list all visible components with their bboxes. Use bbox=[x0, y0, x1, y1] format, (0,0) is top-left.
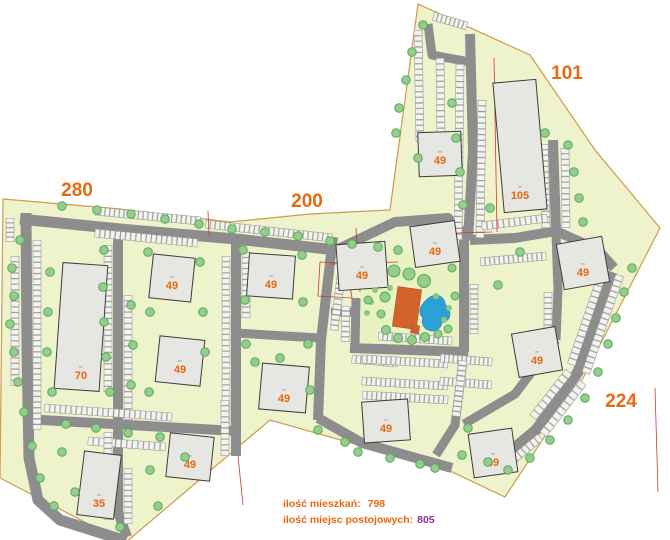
parking-stall bbox=[440, 377, 444, 385]
parking-stall bbox=[334, 294, 343, 300]
parking-stall bbox=[415, 109, 423, 114]
parking-stall bbox=[205, 220, 210, 228]
parking-stall bbox=[127, 440, 132, 448]
parking-stall bbox=[456, 76, 464, 81]
parking-stall bbox=[562, 205, 570, 210]
tree bbox=[541, 129, 550, 138]
parking-stall bbox=[222, 284, 230, 289]
parking-stall bbox=[110, 231, 115, 239]
parking-stall bbox=[542, 252, 547, 260]
apartments-value: 798 bbox=[368, 498, 386, 510]
parking-stall bbox=[410, 380, 415, 388]
parking-stall bbox=[221, 417, 229, 422]
tree bbox=[127, 301, 136, 310]
parking-stall bbox=[470, 299, 478, 303]
parking-stall bbox=[11, 341, 19, 346]
parking-stall bbox=[11, 330, 19, 335]
tree bbox=[276, 354, 285, 363]
parking-stall bbox=[405, 358, 410, 366]
tree bbox=[199, 308, 208, 317]
building-unit-count: 49 bbox=[278, 393, 290, 405]
parking-stall bbox=[476, 233, 484, 238]
parking-stall bbox=[474, 380, 478, 388]
tree bbox=[58, 448, 67, 457]
parking-stall bbox=[562, 223, 570, 228]
tree bbox=[48, 388, 57, 397]
tree bbox=[100, 318, 109, 327]
parking-stall bbox=[470, 319, 478, 323]
parking-stall bbox=[429, 395, 434, 403]
parking-stall bbox=[509, 255, 514, 263]
road bbox=[355, 298, 356, 346]
parking-stall bbox=[104, 257, 112, 262]
parking-stall bbox=[105, 230, 110, 238]
tree bbox=[434, 330, 442, 338]
parking-stall bbox=[221, 406, 229, 411]
parking-stall bbox=[405, 380, 410, 388]
tree bbox=[382, 326, 391, 335]
parking-stall bbox=[146, 234, 151, 242]
tree bbox=[448, 264, 456, 272]
parking-stall bbox=[98, 408, 103, 416]
parking-stall bbox=[303, 231, 308, 239]
parking-stall bbox=[477, 175, 485, 180]
parking-stall bbox=[562, 200, 570, 205]
parking-stall bbox=[362, 377, 367, 385]
tree bbox=[459, 201, 468, 210]
tree bbox=[408, 48, 417, 57]
parking-stall bbox=[458, 360, 466, 365]
parking-stall bbox=[455, 386, 463, 391]
parking-stall bbox=[116, 439, 121, 447]
tree bbox=[575, 194, 584, 203]
tree bbox=[10, 292, 19, 301]
parking-stall bbox=[6, 228, 14, 232]
parking-stall bbox=[215, 221, 220, 229]
parking-stall bbox=[414, 30, 422, 35]
parking-stall bbox=[448, 378, 452, 386]
parking-stall bbox=[330, 325, 339, 331]
parking-stall bbox=[367, 391, 372, 399]
tree bbox=[156, 433, 165, 442]
tree bbox=[458, 451, 467, 460]
parking-stall bbox=[33, 341, 41, 346]
parking-stall bbox=[424, 381, 429, 389]
parking-stall bbox=[11, 358, 19, 363]
tree bbox=[129, 341, 138, 350]
tree bbox=[146, 308, 155, 317]
district-label-280: 280 bbox=[61, 180, 93, 201]
community-building-annex bbox=[411, 325, 420, 334]
parking-stall bbox=[167, 236, 172, 244]
parking-stall bbox=[33, 274, 41, 279]
parking-stall bbox=[454, 193, 462, 198]
parking-stall bbox=[410, 394, 415, 402]
tree bbox=[408, 336, 417, 345]
parking-stall bbox=[436, 93, 444, 98]
parking-stall bbox=[562, 217, 570, 222]
parking-stall bbox=[124, 392, 132, 397]
tree bbox=[14, 378, 23, 387]
parking-stall bbox=[498, 219, 504, 228]
parking-stall bbox=[221, 451, 229, 456]
parking-stall bbox=[478, 106, 486, 111]
parking-stall bbox=[124, 491, 132, 496]
parking-stall bbox=[33, 257, 41, 262]
parking-stall bbox=[415, 103, 423, 108]
parking-stall bbox=[372, 356, 377, 364]
parking-stall bbox=[484, 357, 488, 365]
parking-stall bbox=[33, 408, 41, 413]
parking-stall bbox=[334, 299, 343, 305]
building-unit-count: 49 bbox=[265, 279, 277, 291]
tree bbox=[451, 292, 459, 300]
parking-stall bbox=[66, 406, 71, 414]
parking-stall bbox=[221, 400, 229, 405]
parking-stall bbox=[341, 322, 349, 327]
parking-stall bbox=[124, 468, 132, 473]
building: m²70 bbox=[54, 263, 108, 392]
parking-stall bbox=[11, 364, 19, 369]
parking-stall bbox=[33, 302, 41, 307]
parking-stall bbox=[104, 381, 112, 386]
parking-stall bbox=[525, 216, 531, 225]
parking-stall bbox=[356, 355, 361, 363]
parking-stall bbox=[33, 313, 41, 318]
parking-stall bbox=[33, 397, 41, 402]
parking-stall bbox=[478, 118, 486, 123]
parking-stall bbox=[244, 224, 249, 232]
parking-stall bbox=[437, 105, 445, 110]
parking-stall bbox=[381, 356, 386, 364]
parking-stall bbox=[371, 378, 376, 386]
tree bbox=[239, 246, 248, 255]
parking-stall bbox=[151, 235, 156, 243]
shrub bbox=[387, 285, 393, 291]
parking-stall bbox=[222, 374, 230, 379]
parking-stall bbox=[395, 379, 400, 387]
parking-stall bbox=[279, 228, 284, 236]
parking-stall bbox=[254, 225, 259, 233]
tree bbox=[145, 388, 154, 397]
parking-stall bbox=[124, 364, 132, 369]
parking-stall bbox=[466, 356, 470, 364]
parking-stall bbox=[222, 318, 230, 323]
tree bbox=[421, 333, 430, 342]
parking-stall bbox=[222, 329, 230, 334]
parking-stall bbox=[33, 252, 41, 257]
building-unit-count: 35 bbox=[93, 498, 105, 510]
parking-stall bbox=[419, 380, 424, 388]
parking-stall bbox=[561, 154, 569, 159]
parking-stall bbox=[124, 485, 132, 490]
parking-stall bbox=[82, 407, 87, 415]
parking-stall bbox=[33, 291, 41, 296]
parking-label: ilość miejsc postojowych: bbox=[283, 514, 413, 526]
parking-stall bbox=[100, 230, 105, 238]
parking-stall bbox=[477, 181, 485, 186]
tree bbox=[546, 436, 555, 445]
parking-stall bbox=[456, 88, 464, 93]
parking-stall bbox=[477, 135, 485, 140]
parking-stall bbox=[490, 257, 495, 265]
parking-stall bbox=[160, 443, 165, 451]
parking-stall bbox=[341, 337, 349, 342]
parking-stall bbox=[504, 255, 509, 263]
parking-stall bbox=[240, 224, 245, 232]
building-unit-count: 49 bbox=[356, 270, 368, 282]
parking-stall bbox=[104, 347, 112, 352]
parking-stall bbox=[453, 406, 461, 411]
parking-stall bbox=[514, 217, 520, 226]
parking-stall bbox=[33, 414, 41, 419]
parking-stall bbox=[124, 480, 132, 485]
parking-stall bbox=[124, 375, 132, 380]
parking-stall bbox=[249, 225, 254, 233]
building-unit-count: 49 bbox=[380, 423, 392, 435]
tree bbox=[314, 426, 323, 435]
parking-stall bbox=[222, 290, 230, 295]
parking-stall bbox=[453, 355, 457, 363]
shrub bbox=[372, 287, 378, 293]
parking-stall bbox=[124, 295, 132, 300]
tree bbox=[431, 464, 440, 473]
parking-stall bbox=[222, 380, 230, 385]
parking-stall bbox=[434, 395, 439, 403]
parking-stall bbox=[138, 441, 143, 449]
building-unit-count: 49 bbox=[577, 267, 589, 279]
tree bbox=[486, 204, 495, 213]
tree bbox=[44, 308, 53, 317]
parking-stall bbox=[544, 298, 552, 303]
parking-stall bbox=[182, 238, 187, 246]
parking-stall bbox=[76, 406, 81, 414]
building: m²49 bbox=[512, 327, 563, 378]
tree bbox=[241, 296, 250, 305]
parking-stall bbox=[124, 508, 132, 513]
parking-stall bbox=[420, 358, 425, 366]
parking-stall bbox=[176, 215, 181, 223]
tree bbox=[604, 340, 613, 349]
parking-stall bbox=[454, 217, 462, 222]
parking-stall bbox=[536, 215, 542, 224]
parking-stall bbox=[542, 223, 550, 228]
parking-stall bbox=[443, 336, 447, 344]
parking-stall bbox=[124, 496, 132, 501]
parking-stall bbox=[470, 309, 478, 313]
parking-stall bbox=[11, 369, 19, 374]
parking-stall bbox=[367, 355, 372, 363]
tree bbox=[6, 320, 15, 329]
site-plan-map: m²70m²35m²49m²49m²49m²49m²49m²49m²49m²10… bbox=[0, 0, 670, 540]
tree bbox=[106, 388, 115, 397]
tree bbox=[20, 408, 29, 417]
parking-stall bbox=[33, 369, 41, 374]
parking-stall bbox=[124, 352, 132, 357]
tree bbox=[484, 458, 493, 467]
parking-stall bbox=[436, 70, 444, 75]
building: m²35 bbox=[77, 451, 122, 519]
parking-stall bbox=[415, 86, 423, 91]
apartments-label: ilość mieszkań: bbox=[283, 498, 361, 510]
parking-stall bbox=[477, 141, 485, 146]
parking-stall bbox=[288, 229, 293, 237]
parking-stall bbox=[222, 352, 230, 357]
parking-stall bbox=[531, 215, 537, 224]
parking-stall bbox=[520, 217, 526, 226]
tree bbox=[99, 283, 108, 292]
tree bbox=[564, 416, 573, 425]
parking-stall bbox=[377, 392, 382, 400]
parking-stall bbox=[124, 335, 132, 340]
parking-stall bbox=[414, 36, 422, 41]
tree bbox=[251, 358, 260, 367]
district-label-101: 101 bbox=[551, 63, 583, 84]
parking-stall bbox=[470, 284, 478, 288]
parking-stall bbox=[95, 229, 100, 237]
parking-stall bbox=[221, 434, 229, 439]
parking-stall bbox=[108, 409, 113, 417]
parking-stall bbox=[99, 438, 104, 446]
parking-stall bbox=[135, 410, 140, 418]
parking-stall bbox=[104, 364, 112, 369]
parking-stall bbox=[479, 357, 483, 365]
tree bbox=[392, 129, 401, 138]
parking-stall bbox=[130, 410, 135, 418]
parking-stall bbox=[381, 392, 386, 400]
parking-stall bbox=[124, 318, 132, 323]
parking-stall bbox=[71, 406, 76, 414]
parking-stall bbox=[456, 99, 464, 104]
parking-stall bbox=[115, 231, 120, 239]
tree bbox=[364, 296, 372, 304]
tree bbox=[127, 381, 136, 390]
parking-row bbox=[6, 218, 14, 241]
parking-stall bbox=[124, 502, 132, 507]
parking-stall bbox=[477, 187, 485, 192]
tree bbox=[46, 268, 55, 277]
parking-stall bbox=[60, 405, 65, 413]
tree bbox=[394, 334, 403, 343]
parking-stall bbox=[222, 368, 230, 373]
parking-stall bbox=[456, 70, 464, 75]
parking-stall bbox=[436, 82, 444, 87]
building-unit-count: 49 bbox=[531, 355, 543, 367]
parking-stall bbox=[448, 337, 452, 345]
parking-stall bbox=[494, 256, 499, 264]
building-unit-count: 49 bbox=[429, 246, 441, 258]
parking-stall bbox=[478, 123, 486, 128]
parking-stall bbox=[475, 357, 479, 365]
parking-stall bbox=[440, 354, 444, 362]
parking-stall bbox=[453, 401, 461, 406]
parking-stall bbox=[124, 358, 132, 363]
tree bbox=[516, 248, 525, 257]
parking-stall bbox=[221, 423, 229, 428]
tree bbox=[299, 298, 308, 307]
parking-stall bbox=[50, 404, 55, 412]
site-plan: m²70m²35m²49m²49m²49m²49m²49m²49m²49m²10… bbox=[0, 0, 670, 540]
tree bbox=[16, 236, 25, 245]
parking-stall bbox=[104, 341, 112, 346]
parking-stall bbox=[471, 356, 475, 364]
parking-stall bbox=[162, 236, 167, 244]
parking-stall bbox=[33, 285, 41, 290]
parking-stall bbox=[104, 370, 112, 375]
parking-stall bbox=[437, 111, 445, 116]
tree bbox=[304, 340, 313, 349]
parking-stall bbox=[33, 358, 41, 363]
parking-stall bbox=[222, 324, 230, 329]
parking-stall bbox=[124, 329, 132, 334]
parking-stall bbox=[6, 238, 14, 242]
parking-stall bbox=[104, 438, 112, 443]
parking-stall bbox=[391, 379, 396, 387]
parking-stall bbox=[11, 256, 19, 261]
parking-stall bbox=[33, 307, 41, 312]
parking-stall bbox=[124, 403, 132, 408]
parking-stall bbox=[342, 316, 350, 321]
tree bbox=[43, 348, 52, 357]
tree bbox=[419, 21, 428, 30]
parking-stall bbox=[381, 378, 386, 386]
tree bbox=[102, 353, 111, 362]
building: m²49 bbox=[155, 336, 205, 386]
parking-line: ilość miejsc postojowych:805 bbox=[283, 512, 435, 528]
district-label-200: 200 bbox=[291, 191, 323, 212]
parking-stall bbox=[33, 419, 41, 424]
parking-stall bbox=[138, 211, 143, 219]
parking-stall bbox=[33, 330, 41, 335]
parking-stall bbox=[221, 428, 229, 433]
parking-stall bbox=[470, 294, 478, 298]
parking-stall bbox=[458, 365, 466, 370]
parking-stall bbox=[480, 258, 485, 266]
parking-stall bbox=[415, 394, 420, 402]
parking-stall bbox=[125, 232, 130, 240]
parking-stall bbox=[416, 126, 424, 131]
parking-stall bbox=[477, 198, 485, 203]
parking-stall bbox=[478, 112, 486, 117]
parking-stall bbox=[434, 381, 439, 389]
parking-stall bbox=[119, 409, 124, 417]
parking-stall bbox=[11, 335, 19, 340]
parking-stall bbox=[342, 311, 350, 316]
parking-stall bbox=[561, 171, 569, 176]
parking-stall bbox=[242, 313, 250, 318]
parking-stall bbox=[429, 359, 434, 367]
tree bbox=[374, 243, 383, 252]
parking-stall bbox=[445, 354, 449, 362]
tree bbox=[354, 448, 363, 457]
parking-stall bbox=[222, 301, 230, 306]
tree bbox=[10, 348, 19, 357]
parking-stall bbox=[124, 324, 132, 329]
road bbox=[468, 34, 473, 240]
parking-stall bbox=[454, 396, 462, 401]
parking-stall bbox=[400, 379, 405, 387]
parking-stall bbox=[415, 92, 423, 97]
parking-stall bbox=[33, 386, 41, 391]
tree bbox=[394, 246, 403, 255]
parking-stall bbox=[544, 309, 552, 314]
tree bbox=[294, 232, 303, 241]
parking-stall bbox=[436, 76, 444, 81]
parking-stall bbox=[333, 304, 342, 310]
parking-stall bbox=[222, 256, 230, 261]
parking-stall bbox=[124, 513, 132, 518]
tree bbox=[444, 325, 452, 333]
